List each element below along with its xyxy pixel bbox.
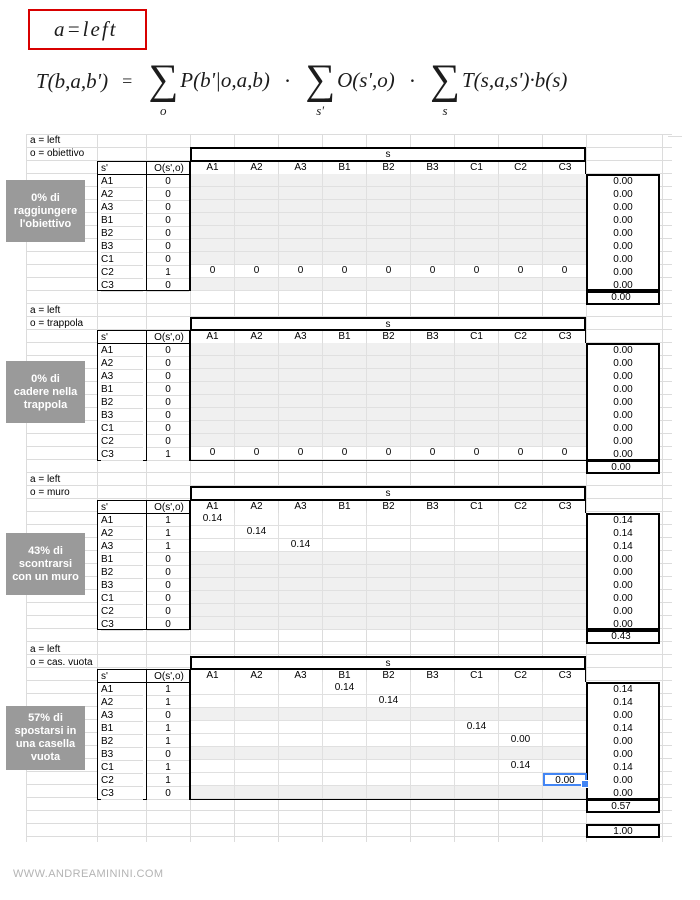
matrix-cell[interactable]: [499, 747, 543, 760]
matrix-cell[interactable]: [323, 239, 367, 252]
matrix-cell[interactable]: [279, 786, 323, 799]
matrix-cell[interactable]: [235, 617, 279, 630]
matrix-cell[interactable]: [455, 187, 499, 200]
matrix-cell[interactable]: [411, 369, 455, 382]
matrix-cell[interactable]: [455, 604, 499, 617]
matrix-cell[interactable]: [367, 395, 411, 408]
matrix-cell[interactable]: 0.00: [543, 773, 587, 786]
matrix-cell[interactable]: [543, 760, 587, 773]
matrix-cell[interactable]: [499, 786, 543, 799]
row-total-value[interactable]: 0.14: [588, 696, 658, 709]
matrix-cell[interactable]: [279, 773, 323, 786]
matrix-cell[interactable]: [323, 760, 367, 773]
matrix-cell[interactable]: [455, 695, 499, 708]
matrix-cell[interactable]: [191, 200, 235, 213]
matrix-cell[interactable]: [411, 760, 455, 773]
matrix-cell[interactable]: [367, 760, 411, 773]
matrix-cell[interactable]: [411, 526, 455, 539]
column-header-cell[interactable]: C1: [455, 670, 499, 682]
matrix-cell[interactable]: [323, 200, 367, 213]
matrix-cell[interactable]: [279, 343, 323, 356]
matrix-cell[interactable]: [543, 682, 587, 695]
o-label-cell[interactable]: o = muro: [30, 486, 150, 499]
matrix-cell[interactable]: [455, 682, 499, 695]
matrix-cell[interactable]: [279, 213, 323, 226]
matrix-cell[interactable]: [455, 773, 499, 786]
matrix-cell[interactable]: [455, 278, 499, 291]
matrix-cell[interactable]: [279, 708, 323, 721]
matrix-cell[interactable]: [411, 617, 455, 630]
o-value-cell[interactable]: 0: [147, 253, 189, 266]
row-total-value[interactable]: 0.00: [588, 253, 658, 266]
matrix-cell[interactable]: [543, 708, 587, 721]
o-value-cell[interactable]: 1: [147, 683, 189, 696]
sprime-row-label[interactable]: C3: [101, 448, 143, 461]
row-total-value[interactable]: 0.00: [588, 709, 658, 722]
matrix-cell[interactable]: [411, 539, 455, 552]
matrix-cell[interactable]: 0: [367, 447, 411, 460]
matrix-cell[interactable]: [499, 526, 543, 539]
column-header-cell[interactable]: B1: [323, 331, 367, 343]
sprime-row-label[interactable]: A3: [101, 540, 143, 553]
matrix-cell[interactable]: [499, 252, 543, 265]
o-value-cell[interactable]: 0: [147, 605, 189, 618]
matrix-cell[interactable]: [323, 213, 367, 226]
matrix-cell[interactable]: [279, 526, 323, 539]
matrix-cell[interactable]: [323, 526, 367, 539]
matrix-cell[interactable]: [499, 708, 543, 721]
matrix-cell[interactable]: [411, 747, 455, 760]
matrix-cell[interactable]: [235, 395, 279, 408]
matrix-cell[interactable]: [235, 721, 279, 734]
sprime-row-label[interactable]: C1: [101, 422, 143, 435]
matrix-cell[interactable]: [235, 760, 279, 773]
o-value-cell[interactable]: 0: [147, 227, 189, 240]
matrix-cell[interactable]: [543, 434, 587, 447]
matrix-cell[interactable]: [411, 408, 455, 421]
matrix-cell[interactable]: [411, 395, 455, 408]
matrix-cell[interactable]: [411, 604, 455, 617]
row-total-value[interactable]: 0.00: [588, 175, 658, 188]
matrix-cell[interactable]: [411, 356, 455, 369]
matrix-cell[interactable]: [235, 200, 279, 213]
sprime-row-label[interactable]: C3: [101, 787, 143, 800]
o-value-cell[interactable]: 1: [147, 696, 189, 709]
matrix-cell[interactable]: [367, 565, 411, 578]
o-value-cell[interactable]: 0: [147, 566, 189, 579]
matrix-cell[interactable]: [191, 747, 235, 760]
matrix-cell[interactable]: [455, 356, 499, 369]
matrix-cell[interactable]: [543, 174, 587, 187]
matrix-cell[interactable]: [543, 395, 587, 408]
column-header-cell[interactable]: A3: [279, 162, 323, 174]
matrix-cell[interactable]: 0.14: [499, 760, 543, 773]
matrix-cell[interactable]: [455, 760, 499, 773]
matrix-cell[interactable]: [323, 734, 367, 747]
sprime-row-label[interactable]: B1: [101, 553, 143, 566]
row-total-value[interactable]: 0.00: [588, 240, 658, 253]
section-sum-value[interactable]: 0.57: [586, 800, 656, 813]
sprime-header-cell[interactable]: s': [101, 331, 141, 343]
matrix-cell[interactable]: [279, 760, 323, 773]
matrix-cell[interactable]: [367, 721, 411, 734]
sprime-row-label[interactable]: C1: [101, 592, 143, 605]
row-total-value[interactable]: 0.00: [588, 422, 658, 435]
matrix-cell[interactable]: [499, 721, 543, 734]
o-value-cell[interactable]: 1: [147, 540, 189, 553]
matrix-cell[interactable]: [499, 539, 543, 552]
sprime-row-label[interactable]: B3: [101, 748, 143, 761]
matrix-cell[interactable]: [191, 187, 235, 200]
matrix-cell[interactable]: [367, 187, 411, 200]
matrix-cell[interactable]: [455, 408, 499, 421]
matrix-cell[interactable]: [323, 252, 367, 265]
matrix-cell[interactable]: [455, 617, 499, 630]
matrix-cell[interactable]: [191, 682, 235, 695]
matrix-cell[interactable]: 0: [543, 447, 587, 460]
matrix-cell[interactable]: [191, 434, 235, 447]
sprime-row-label[interactable]: A1: [101, 514, 143, 527]
matrix-cell[interactable]: 0: [191, 265, 235, 278]
matrix-cell[interactable]: [543, 343, 587, 356]
matrix-cell[interactable]: [411, 278, 455, 291]
matrix-cell[interactable]: [455, 174, 499, 187]
matrix-cell[interactable]: [367, 773, 411, 786]
matrix-cell[interactable]: [455, 382, 499, 395]
o-value-cell[interactable]: 0: [147, 357, 189, 370]
o-value-cell[interactable]: 0: [147, 396, 189, 409]
matrix-cell[interactable]: [367, 682, 411, 695]
matrix-cell[interactable]: [191, 382, 235, 395]
column-header-cell[interactable]: B2: [367, 331, 411, 343]
matrix-cell[interactable]: [191, 695, 235, 708]
matrix-cell[interactable]: [499, 773, 543, 786]
row-total-value[interactable]: 0.14: [588, 722, 658, 735]
matrix-cell[interactable]: [411, 434, 455, 447]
matrix-cell[interactable]: [191, 395, 235, 408]
matrix-cell[interactable]: [191, 591, 235, 604]
matrix-cell[interactable]: [367, 213, 411, 226]
matrix-cell[interactable]: [455, 578, 499, 591]
matrix-cell[interactable]: [323, 539, 367, 552]
row-total-value[interactable]: 0.00: [588, 592, 658, 605]
matrix-cell[interactable]: [191, 356, 235, 369]
o-label-cell[interactable]: o = obiettivo: [30, 147, 150, 160]
matrix-cell[interactable]: [543, 369, 587, 382]
matrix-cell[interactable]: [543, 695, 587, 708]
matrix-cell[interactable]: [235, 434, 279, 447]
matrix-cell[interactable]: [499, 382, 543, 395]
matrix-cell[interactable]: [235, 734, 279, 747]
matrix-cell[interactable]: [279, 617, 323, 630]
matrix-cell[interactable]: [235, 408, 279, 421]
sprime-row-label[interactable]: A2: [101, 527, 143, 540]
o-value-cell[interactable]: 0: [147, 201, 189, 214]
o-value-cell[interactable]: 0: [147, 240, 189, 253]
sprime-row-label[interactable]: C2: [101, 774, 143, 787]
a-label-cell[interactable]: a = left: [30, 304, 150, 317]
matrix-cell[interactable]: [279, 252, 323, 265]
matrix-cell[interactable]: [323, 226, 367, 239]
matrix-cell[interactable]: [543, 565, 587, 578]
matrix-cell[interactable]: [367, 343, 411, 356]
matrix-cell[interactable]: [279, 226, 323, 239]
o-value-cell[interactable]: 1: [147, 514, 189, 527]
matrix-cell[interactable]: [411, 421, 455, 434]
matrix-cell[interactable]: [279, 721, 323, 734]
o-header-cell[interactable]: O(s',o): [147, 162, 191, 174]
matrix-cell[interactable]: 0: [323, 447, 367, 460]
matrix-cell[interactable]: [499, 343, 543, 356]
matrix-cell[interactable]: [191, 565, 235, 578]
row-total-value[interactable]: 0.00: [588, 566, 658, 579]
matrix-cell[interactable]: [367, 434, 411, 447]
matrix-cell[interactable]: 0.14: [279, 539, 323, 552]
matrix-cell[interactable]: [411, 786, 455, 799]
matrix-cell[interactable]: [191, 421, 235, 434]
o-value-cell[interactable]: 0: [147, 435, 189, 448]
o-value-cell[interactable]: 0: [147, 344, 189, 357]
matrix-cell[interactable]: [499, 200, 543, 213]
matrix-cell[interactable]: [235, 187, 279, 200]
o-value-cell[interactable]: 0: [147, 787, 189, 800]
matrix-cell[interactable]: 0: [367, 265, 411, 278]
matrix-cell[interactable]: [279, 695, 323, 708]
sprime-row-label[interactable]: B3: [101, 579, 143, 592]
o-value-cell[interactable]: 0: [147, 409, 189, 422]
column-header-cell[interactable]: B2: [367, 501, 411, 513]
matrix-cell[interactable]: [279, 174, 323, 187]
matrix-cell[interactable]: [455, 213, 499, 226]
matrix-cell[interactable]: [499, 617, 543, 630]
matrix-cell[interactable]: [235, 278, 279, 291]
matrix-cell[interactable]: [455, 369, 499, 382]
a-label-cell[interactable]: a = left: [30, 643, 150, 656]
matrix-cell[interactable]: [235, 369, 279, 382]
matrix-cell[interactable]: [367, 786, 411, 799]
matrix-cell[interactable]: [235, 239, 279, 252]
matrix-cell[interactable]: [191, 343, 235, 356]
row-total-value[interactable]: 0.00: [588, 383, 658, 396]
matrix-cell[interactable]: 0: [411, 265, 455, 278]
matrix-cell[interactable]: [235, 343, 279, 356]
row-total-value[interactable]: 0.14: [588, 683, 658, 696]
sprime-row-label[interactable]: A1: [101, 344, 143, 357]
matrix-cell[interactable]: 0: [235, 447, 279, 460]
matrix-cell[interactable]: [455, 434, 499, 447]
matrix-cell[interactable]: [411, 721, 455, 734]
matrix-cell[interactable]: [367, 382, 411, 395]
matrix-cell[interactable]: [367, 578, 411, 591]
matrix-cell[interactable]: [411, 708, 455, 721]
matrix-cell[interactable]: [543, 252, 587, 265]
matrix-cell[interactable]: 0: [279, 447, 323, 460]
sprime-row-label[interactable]: A1: [101, 683, 143, 696]
matrix-cell[interactable]: [455, 343, 499, 356]
o-value-cell[interactable]: 0: [147, 592, 189, 605]
sprime-row-label[interactable]: B1: [101, 214, 143, 227]
matrix-cell[interactable]: [411, 695, 455, 708]
matrix-cell[interactable]: [323, 604, 367, 617]
matrix-cell[interactable]: [235, 708, 279, 721]
row-total-value[interactable]: 0.00: [588, 735, 658, 748]
matrix-cell[interactable]: 0: [499, 447, 543, 460]
matrix-cell[interactable]: [411, 213, 455, 226]
matrix-cell[interactable]: [411, 174, 455, 187]
matrix-cell[interactable]: [235, 382, 279, 395]
matrix-cell[interactable]: [367, 526, 411, 539]
sprime-row-label[interactable]: B1: [101, 722, 143, 735]
matrix-cell[interactable]: [543, 604, 587, 617]
column-header-cell[interactable]: C3: [543, 331, 587, 343]
sprime-row-label[interactable]: C3: [101, 618, 143, 631]
matrix-cell[interactable]: [543, 552, 587, 565]
sprime-row-label[interactable]: B3: [101, 240, 143, 253]
o-value-cell[interactable]: 0: [147, 279, 189, 292]
column-header-cell[interactable]: C3: [543, 501, 587, 513]
matrix-cell[interactable]: 0: [455, 265, 499, 278]
matrix-cell[interactable]: [323, 721, 367, 734]
matrix-cell[interactable]: [455, 526, 499, 539]
matrix-cell[interactable]: [411, 578, 455, 591]
matrix-cell[interactable]: 0: [411, 447, 455, 460]
o-value-cell[interactable]: 0: [147, 214, 189, 227]
column-header-cell[interactable]: B2: [367, 162, 411, 174]
matrix-cell[interactable]: [411, 187, 455, 200]
column-header-cell[interactable]: B1: [323, 501, 367, 513]
row-total-value[interactable]: 0.00: [588, 227, 658, 240]
matrix-cell[interactable]: [367, 513, 411, 526]
matrix-cell[interactable]: [191, 578, 235, 591]
matrix-cell[interactable]: [543, 617, 587, 630]
matrix-cell[interactable]: [323, 187, 367, 200]
o-value-cell[interactable]: 0: [147, 709, 189, 722]
matrix-cell[interactable]: [323, 174, 367, 187]
matrix-cell[interactable]: [499, 239, 543, 252]
column-header-cell[interactable]: A3: [279, 501, 323, 513]
matrix-cell[interactable]: 0: [455, 447, 499, 460]
row-total-value[interactable]: 0.14: [588, 540, 658, 553]
o-value-cell[interactable]: 0: [147, 175, 189, 188]
matrix-cell[interactable]: [191, 408, 235, 421]
o-value-cell[interactable]: 0: [147, 618, 189, 631]
o-value-cell[interactable]: 0: [147, 188, 189, 201]
matrix-cell[interactable]: [367, 421, 411, 434]
section-sum-value[interactable]: 0.00: [586, 291, 656, 304]
sprime-row-label[interactable]: B3: [101, 409, 143, 422]
matrix-cell[interactable]: [323, 434, 367, 447]
matrix-cell[interactable]: [279, 408, 323, 421]
matrix-cell[interactable]: [499, 395, 543, 408]
matrix-cell[interactable]: 0: [543, 265, 587, 278]
matrix-cell[interactable]: [279, 382, 323, 395]
column-header-cell[interactable]: A1: [191, 162, 235, 174]
matrix-cell[interactable]: [323, 747, 367, 760]
sprime-row-label[interactable]: B2: [101, 566, 143, 579]
row-total-value[interactable]: 0.00: [588, 370, 658, 383]
matrix-cell[interactable]: [323, 591, 367, 604]
o-value-cell[interactable]: 0: [147, 748, 189, 761]
matrix-cell[interactable]: [543, 356, 587, 369]
matrix-cell[interactable]: [411, 552, 455, 565]
matrix-cell[interactable]: [191, 708, 235, 721]
matrix-cell[interactable]: [367, 356, 411, 369]
matrix-cell[interactable]: [543, 421, 587, 434]
column-header-cell[interactable]: C1: [455, 331, 499, 343]
matrix-cell[interactable]: [411, 252, 455, 265]
sprime-row-label[interactable]: B2: [101, 735, 143, 748]
matrix-cell[interactable]: [499, 695, 543, 708]
matrix-cell[interactable]: [367, 200, 411, 213]
column-header-cell[interactable]: C3: [543, 670, 587, 682]
matrix-cell[interactable]: [235, 252, 279, 265]
section-sum-value[interactable]: 0.43: [586, 630, 656, 643]
matrix-cell[interactable]: [499, 682, 543, 695]
column-header-cell[interactable]: A2: [235, 670, 279, 682]
matrix-cell[interactable]: [367, 591, 411, 604]
column-header-cell[interactable]: A2: [235, 331, 279, 343]
matrix-cell[interactable]: [455, 200, 499, 213]
o-header-cell[interactable]: O(s',o): [147, 501, 191, 513]
matrix-cell[interactable]: [499, 513, 543, 526]
matrix-cell[interactable]: [235, 786, 279, 799]
row-total-value[interactable]: 0.14: [588, 514, 658, 527]
column-header-cell[interactable]: A1: [191, 670, 235, 682]
matrix-cell[interactable]: [367, 226, 411, 239]
o-label-cell[interactable]: o = trappola: [30, 317, 150, 330]
matrix-cell[interactable]: [279, 434, 323, 447]
matrix-cell[interactable]: [279, 356, 323, 369]
matrix-cell[interactable]: [367, 252, 411, 265]
matrix-cell[interactable]: [499, 552, 543, 565]
matrix-cell[interactable]: [191, 226, 235, 239]
column-header-cell[interactable]: C2: [499, 501, 543, 513]
matrix-cell[interactable]: [455, 239, 499, 252]
matrix-cell[interactable]: 0: [235, 265, 279, 278]
matrix-cell[interactable]: [543, 187, 587, 200]
matrix-cell[interactable]: [323, 421, 367, 434]
matrix-cell[interactable]: [279, 565, 323, 578]
matrix-cell[interactable]: [455, 539, 499, 552]
column-header-cell[interactable]: B2: [367, 670, 411, 682]
matrix-cell[interactable]: [279, 200, 323, 213]
o-header-cell[interactable]: O(s',o): [147, 670, 191, 682]
matrix-cell[interactable]: [235, 578, 279, 591]
o-value-cell[interactable]: 1: [147, 761, 189, 774]
matrix-cell[interactable]: [191, 278, 235, 291]
matrix-cell[interactable]: [367, 408, 411, 421]
matrix-cell[interactable]: [279, 278, 323, 291]
matrix-cell[interactable]: [543, 382, 587, 395]
matrix-cell[interactable]: [235, 773, 279, 786]
matrix-cell[interactable]: [499, 591, 543, 604]
matrix-cell[interactable]: [367, 174, 411, 187]
matrix-cell[interactable]: [543, 213, 587, 226]
grand-total-cell[interactable]: 1.00: [586, 824, 660, 838]
column-header-cell[interactable]: A2: [235, 162, 279, 174]
matrix-cell[interactable]: [455, 513, 499, 526]
matrix-cell[interactable]: [235, 682, 279, 695]
matrix-cell[interactable]: [235, 174, 279, 187]
matrix-cell[interactable]: [191, 786, 235, 799]
matrix-cell[interactable]: 0.14: [455, 721, 499, 734]
matrix-cell[interactable]: [499, 174, 543, 187]
column-header-cell[interactable]: B3: [411, 670, 455, 682]
column-header-cell[interactable]: C3: [543, 162, 587, 174]
matrix-cell[interactable]: [323, 786, 367, 799]
matrix-cell[interactable]: [323, 578, 367, 591]
matrix-cell[interactable]: [543, 278, 587, 291]
